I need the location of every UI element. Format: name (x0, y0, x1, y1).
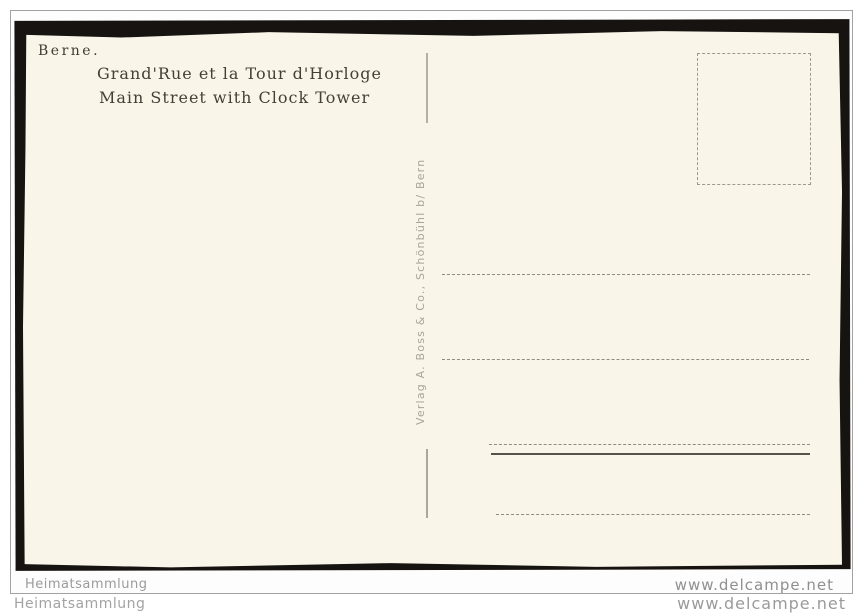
center-divider-bottom (426, 449, 428, 518)
address-line-3 (489, 444, 810, 445)
stamp-box (697, 53, 811, 185)
publisher-imprint: Verlag A. Boss & Co., Schönbühl b/ Bern (414, 134, 436, 450)
collection-watermark-inner: Heimatsammlung (25, 577, 148, 592)
center-divider-top (426, 53, 428, 123)
address-line-4 (496, 514, 810, 515)
address-line-1 (442, 274, 810, 275)
scanned-image-frame: Berne. Grand'Rue et la Tour d'Horloge Ma… (10, 10, 853, 594)
address-underline (491, 453, 810, 455)
postcard-back: Berne. Grand'Rue et la Tour d'Horloge Ma… (23, 30, 842, 569)
site-watermark-inner: www.delcampe.net (675, 576, 834, 594)
city-label: Berne. (38, 43, 100, 59)
title-english: Main Street with Clock Tower (99, 88, 370, 107)
title-french: Grand'Rue et la Tour d'Horloge (97, 64, 382, 83)
site-watermark-outer: www.delcampe.net (677, 594, 846, 613)
collection-watermark-outer: Heimatsammlung (14, 596, 145, 612)
address-line-2 (442, 359, 809, 360)
